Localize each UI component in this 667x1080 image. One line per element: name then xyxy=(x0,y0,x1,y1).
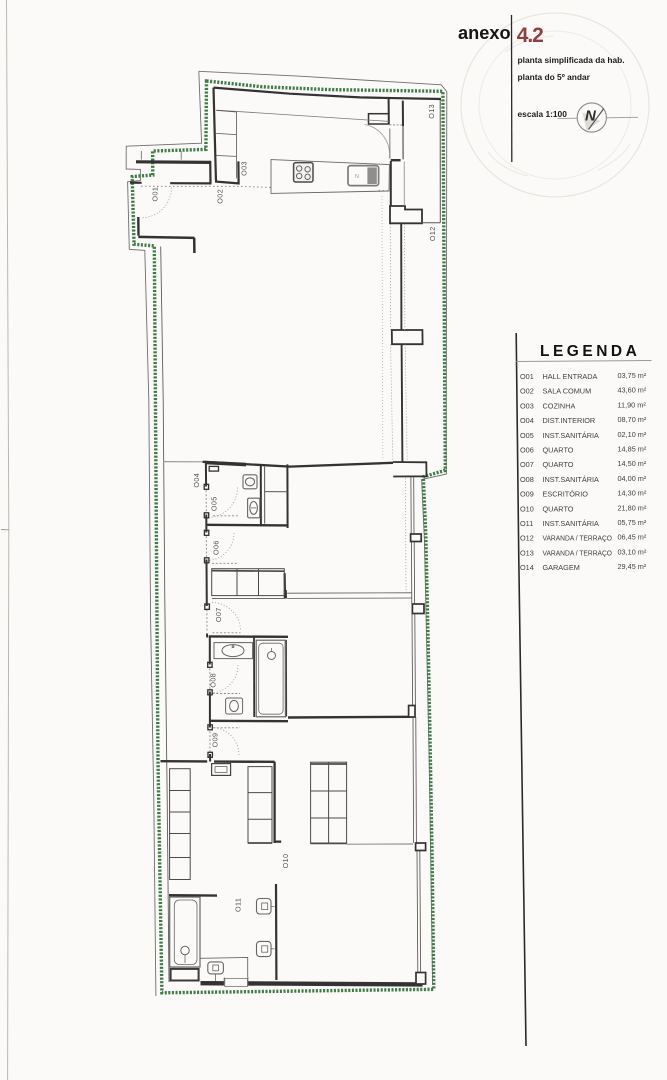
svg-text:O06: O06 xyxy=(212,540,221,555)
svg-text:04,00 m²: 04,00 m² xyxy=(618,474,647,483)
svg-text:COZINHA: COZINHA xyxy=(543,401,576,410)
svg-text:O04: O04 xyxy=(520,416,534,425)
svg-text:DIST.INTERIOR: DIST.INTERIOR xyxy=(543,416,596,425)
svg-text:O03: O03 xyxy=(520,401,534,410)
svg-text:O07: O07 xyxy=(520,460,534,469)
svg-text:O07: O07 xyxy=(214,607,223,622)
svg-text:INST.SANITÁRIA: INST.SANITÁRIA xyxy=(543,475,599,484)
svg-text:O04: O04 xyxy=(192,473,201,488)
svg-text:ESCRITÓRIO: ESCRITÓRIO xyxy=(543,490,589,499)
svg-text:O01: O01 xyxy=(520,372,534,381)
svg-text:O13: O13 xyxy=(427,104,436,119)
svg-text:08,70 m²: 08,70 m² xyxy=(618,415,647,424)
svg-text:O12: O12 xyxy=(520,534,534,543)
svg-text:O02: O02 xyxy=(216,189,225,204)
svg-text:O12: O12 xyxy=(428,226,437,241)
svg-text:GARAGEM: GARAGEM xyxy=(543,563,580,572)
svg-text:14,50 m²: 14,50 m² xyxy=(618,459,647,468)
svg-text:INST.SANITÁRIA: INST.SANITÁRIA xyxy=(543,519,599,528)
svg-text:O06: O06 xyxy=(520,446,534,455)
svg-text:O02: O02 xyxy=(520,387,534,396)
svg-text:planta simplificada da hab.: planta simplificada da hab. xyxy=(518,55,625,65)
svg-text:14,85 m²: 14,85 m² xyxy=(618,445,647,454)
svg-text:05,75 m²: 05,75 m² xyxy=(618,518,647,527)
svg-text:O10: O10 xyxy=(281,854,290,869)
svg-text:03,75 m²: 03,75 m² xyxy=(618,371,647,380)
svg-text:02,10 m²: 02,10 m² xyxy=(618,430,647,439)
svg-text:VARANDA / TERRAÇO: VARANDA / TERRAÇO xyxy=(543,534,613,543)
svg-text:planta do 5º andar: planta do 5º andar xyxy=(518,72,591,82)
svg-text:N: N xyxy=(355,174,359,180)
svg-text:03,10 m²: 03,10 m² xyxy=(618,547,647,556)
svg-text:O08: O08 xyxy=(208,673,217,688)
svg-text:O09: O09 xyxy=(210,733,219,748)
svg-text:O08: O08 xyxy=(520,475,534,484)
svg-text:O09: O09 xyxy=(520,490,534,499)
svg-text:21,80 m²: 21,80 m² xyxy=(618,503,647,512)
svg-text:QUARTO: QUARTO xyxy=(543,504,574,513)
svg-text:O11: O11 xyxy=(520,519,533,528)
svg-text:INST.SANITÁRIA: INST.SANITÁRIA xyxy=(543,431,599,440)
svg-text:O10: O10 xyxy=(520,504,534,513)
svg-text:O01: O01 xyxy=(150,187,159,202)
svg-text:SALA COMUM: SALA COMUM xyxy=(543,387,592,396)
svg-text:escala 1:100: escala 1:100 xyxy=(518,109,568,119)
svg-text:O05: O05 xyxy=(210,496,219,511)
svg-text:O11: O11 xyxy=(233,898,242,912)
svg-text:O14: O14 xyxy=(520,563,534,572)
svg-text:06,45 m²: 06,45 m² xyxy=(618,533,647,542)
svg-text:QUARTO: QUARTO xyxy=(543,446,574,455)
svg-text:O13: O13 xyxy=(520,548,534,557)
svg-text:14,30 m²: 14,30 m² xyxy=(618,489,647,498)
svg-text:HALL ENTRADA: HALL ENTRADA xyxy=(543,372,598,381)
svg-text:O05: O05 xyxy=(520,431,534,440)
svg-text:O03: O03 xyxy=(239,161,248,176)
svg-text:QUARTO: QUARTO xyxy=(543,460,574,469)
svg-text:4.2: 4.2 xyxy=(517,24,543,47)
svg-text:anexo: anexo xyxy=(458,23,511,43)
svg-text:11,90 m²: 11,90 m² xyxy=(618,400,647,409)
svg-text:29,45 m²: 29,45 m² xyxy=(618,562,647,571)
svg-text:N: N xyxy=(585,108,597,125)
svg-text:VARANDA / TERRAÇO: VARANDA / TERRAÇO xyxy=(543,548,613,557)
svg-text:43,60 m²: 43,60 m² xyxy=(618,386,647,395)
svg-text:LEGENDA: LEGENDA xyxy=(540,343,640,360)
